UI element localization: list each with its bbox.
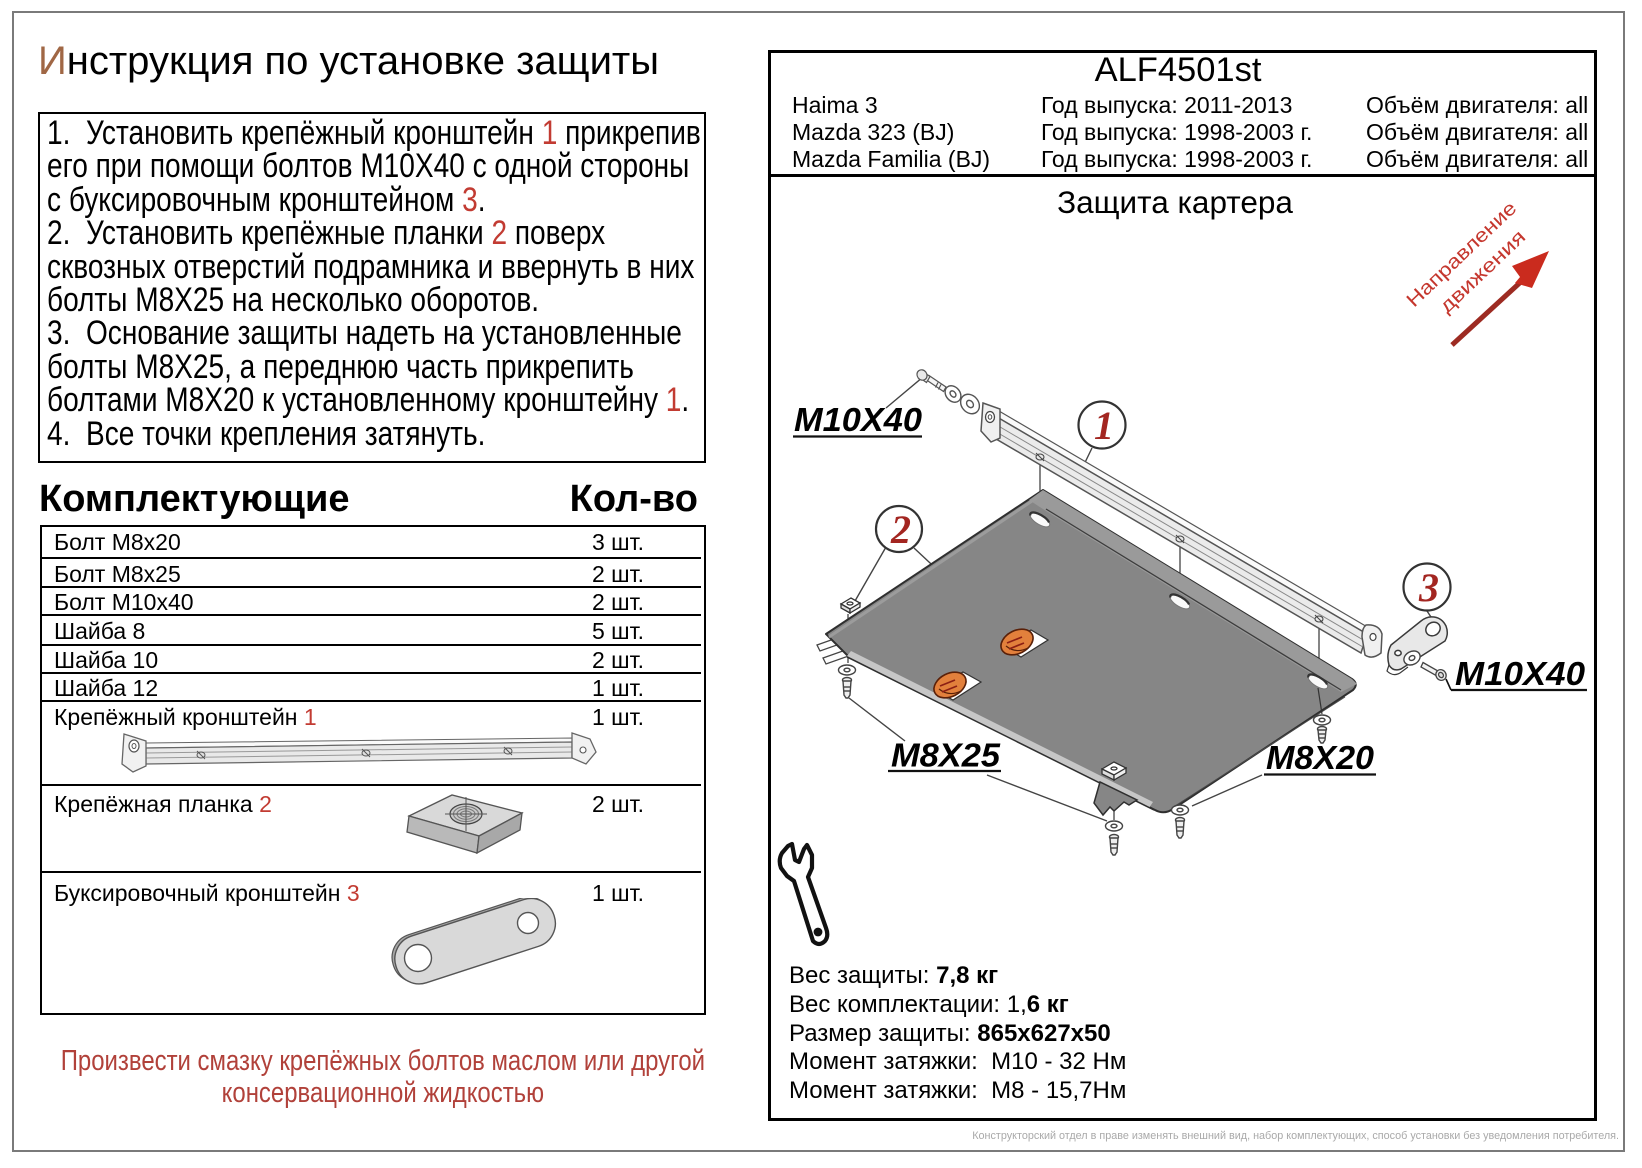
svg-text:M10X40: M10X40 xyxy=(794,401,923,438)
svg-text:M10X40: M10X40 xyxy=(1455,655,1586,692)
svg-text:M8X25: M8X25 xyxy=(891,737,1001,774)
svg-text:3: 3 xyxy=(1418,565,1439,610)
svg-text:1: 1 xyxy=(1094,403,1114,448)
svg-text:M8X20: M8X20 xyxy=(1266,739,1375,776)
svg-text:2: 2 xyxy=(890,507,911,552)
